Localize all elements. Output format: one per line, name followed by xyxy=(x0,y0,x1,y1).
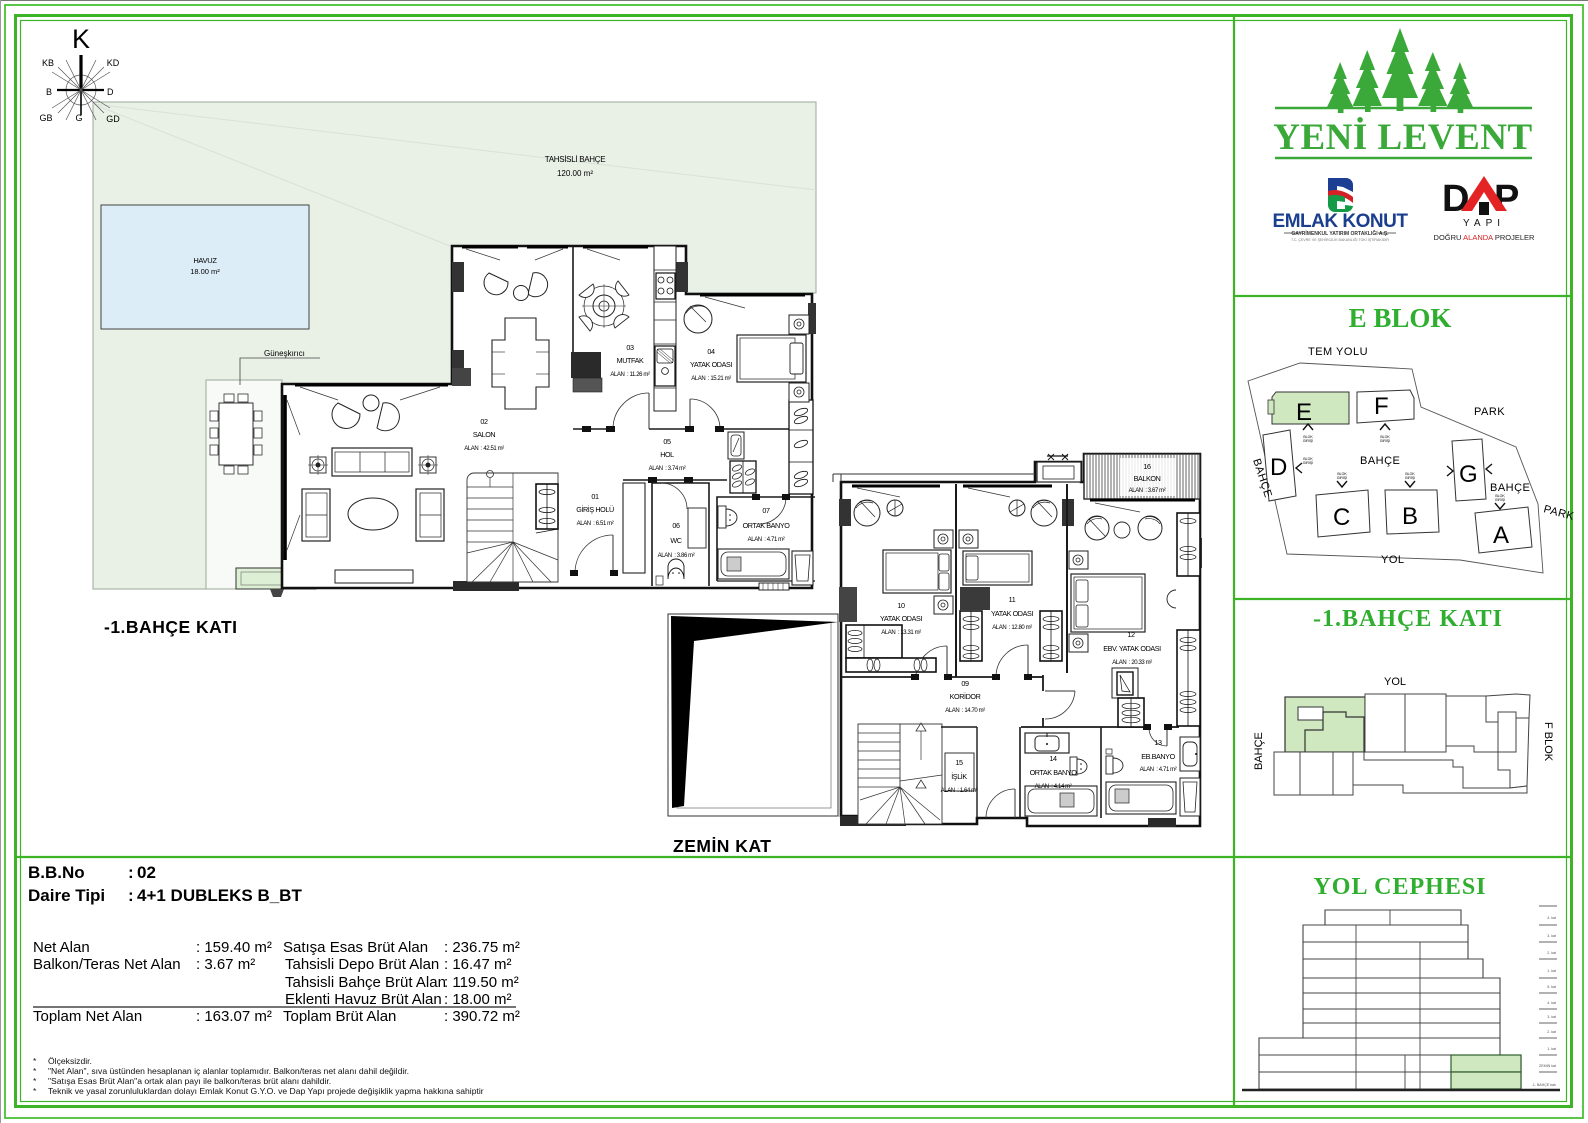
svg-text:C: C xyxy=(1333,504,1350,531)
svg-text:GİRİŞİ: GİRİŞİ xyxy=(1405,475,1416,480)
svg-text:D: D xyxy=(107,87,114,97)
svg-text:B: B xyxy=(1402,503,1418,530)
svg-text:Ölçeksizdir.: Ölçeksizdir. xyxy=(48,1056,92,1066)
svg-text:ALAN : 4.71 m²: ALAN : 4.71 m² xyxy=(748,537,785,543)
svg-text:ALAN : 6.51 m²: ALAN : 6.51 m² xyxy=(577,521,614,527)
svg-text:GAYRİMENKUL YATIRIM ORTAKLIĞI: GAYRİMENKUL YATIRIM ORTAKLIĞI A.Ş. xyxy=(1291,229,1389,237)
svg-text:-1.BAHÇE KATI: -1.BAHÇE KATI xyxy=(104,617,238,637)
svg-text:MUTFAK: MUTFAK xyxy=(617,356,644,365)
svg-text:G: G xyxy=(75,113,82,123)
svg-text:Daire Tipi: Daire Tipi xyxy=(28,886,105,905)
svg-text:4. kat: 4. kat xyxy=(1547,1001,1556,1005)
svg-text:GD: GD xyxy=(106,114,120,124)
svg-text:04: 04 xyxy=(707,347,715,356)
svg-text:ZEMİN KAT: ZEMİN KAT xyxy=(673,836,771,856)
svg-text:GB: GB xyxy=(39,113,52,123)
svg-text:ALAN : 15.21 m²: ALAN : 15.21 m² xyxy=(691,376,731,382)
svg-text:1. kat: 1. kat xyxy=(1547,969,1556,973)
svg-text:: 236.75 m²: : 236.75 m² xyxy=(444,939,520,956)
svg-text:: 163.07 m²: : 163.07 m² xyxy=(196,1008,272,1025)
svg-text:2. kat: 2. kat xyxy=(1547,951,1556,955)
svg-text:Tahsisli Depo Brüt Alan: Tahsisli Depo Brüt Alan xyxy=(285,956,439,973)
svg-text:: 18.00 m²: : 18.00 m² xyxy=(444,991,512,1008)
svg-text:EMLAK KONUT: EMLAK KONUT xyxy=(1273,211,1409,232)
svg-text:F BLOK: F BLOK xyxy=(1542,722,1554,762)
svg-text:ZEMİN kat: ZEMİN kat xyxy=(1539,1063,1556,1068)
svg-text:F: F xyxy=(1374,393,1389,420)
svg-text:TAHSİSLİ BAHÇE: TAHSİSLİ BAHÇE xyxy=(545,155,606,164)
svg-text:KB: KB xyxy=(42,58,54,68)
svg-text:KD: KD xyxy=(107,58,120,68)
svg-text:A: A xyxy=(1493,522,1509,549)
svg-text:BAHÇE: BAHÇE xyxy=(1490,482,1530,494)
svg-text::: : xyxy=(128,886,134,905)
svg-text:ALAN : 4.71 m²: ALAN : 4.71 m² xyxy=(1140,767,1177,773)
svg-text:YATAK ODASI: YATAK ODASI xyxy=(690,360,732,369)
svg-text:: 3.67 m²: : 3.67 m² xyxy=(196,956,255,973)
svg-text:ALAN : 20.33 m²: ALAN : 20.33 m² xyxy=(1112,660,1152,666)
svg-text:: 119.50 m²: : 119.50 m² xyxy=(444,974,519,991)
svg-text:-1. BAHÇE katı: -1. BAHÇE katı xyxy=(1532,1083,1556,1087)
svg-text:ORTAK BANYO: ORTAK BANYO xyxy=(743,521,791,530)
svg-text:SALON: SALON xyxy=(473,430,496,439)
svg-text:BAHÇE: BAHÇE xyxy=(1360,455,1400,467)
svg-text:06: 06 xyxy=(672,521,680,530)
svg-text:: 159.40 m²: : 159.40 m² xyxy=(196,939,272,956)
svg-text:HAVUZ: HAVUZ xyxy=(193,256,217,265)
svg-text:07: 07 xyxy=(762,506,770,515)
svg-text:3. kat: 3. kat xyxy=(1547,934,1556,938)
svg-text:ALAN : 3.67 m²: ALAN : 3.67 m² xyxy=(1129,488,1166,494)
svg-text:ALAN : 11.26 m²: ALAN : 11.26 m² xyxy=(610,372,650,378)
svg-text:ALAN : 12.80 m²: ALAN : 12.80 m² xyxy=(992,625,1032,631)
svg-text:YENİ LEVENT: YENİ LEVENT xyxy=(1273,116,1532,158)
svg-text:05: 05 xyxy=(663,437,671,446)
svg-text:: 390.72 m²: : 390.72 m² xyxy=(444,1008,520,1025)
svg-text:B: B xyxy=(46,87,52,97)
svg-text:YAPI: YAPI xyxy=(1463,218,1505,229)
svg-text:15: 15 xyxy=(955,758,963,767)
svg-text:GİRİŞİ: GİRİŞİ xyxy=(1303,438,1314,443)
svg-text:Net Alan: Net Alan xyxy=(33,939,90,956)
svg-text:D: D xyxy=(1442,178,1468,220)
svg-text:11: 11 xyxy=(1009,595,1016,604)
svg-text:GİRİŞİ: GİRİŞİ xyxy=(1495,497,1506,502)
svg-text:02: 02 xyxy=(480,417,488,426)
svg-text:: 16.47 m²: : 16.47 m² xyxy=(444,956,512,973)
svg-text:İŞLİK: İŞLİK xyxy=(951,772,967,781)
svg-text:GİRİŞİ: GİRİŞİ xyxy=(1380,438,1391,443)
svg-text:E BLOK: E BLOK xyxy=(1349,303,1452,333)
svg-text:BALKON: BALKON xyxy=(1134,474,1161,483)
svg-text:09: 09 xyxy=(961,679,969,688)
svg-text:Tahsisli Bahçe Brüt Alan: Tahsisli Bahçe Brüt Alan xyxy=(285,974,446,991)
svg-text:EB.BANYO: EB.BANYO xyxy=(1141,752,1175,761)
svg-text:"Satışa Esas Brüt Alan"a or: "Satışa Esas Brüt Alan"a ortak alan payı… xyxy=(48,1076,331,1086)
svg-text:EBV. YATAK ODASI: EBV. YATAK ODASI xyxy=(1103,644,1161,653)
svg-text:03: 03 xyxy=(626,343,634,352)
svg-text:02: 02 xyxy=(137,863,156,882)
svg-text:WC: WC xyxy=(670,536,681,545)
svg-text:GİRİŞ HOLÜ: GİRİŞ HOLÜ xyxy=(576,505,614,514)
svg-text:PARK: PARK xyxy=(1474,406,1505,418)
svg-text:ALAN : 14.70 m²: ALAN : 14.70 m² xyxy=(945,708,985,714)
svg-text:4+1 DUBLEKS B_BT: 4+1 DUBLEKS B_BT xyxy=(137,886,302,905)
svg-text:01: 01 xyxy=(591,492,599,501)
svg-text:Teknik ve yasal zorunlulukla: Teknik ve yasal zorunluluklardan dolayı … xyxy=(48,1086,484,1096)
svg-text:KORİDOR: KORİDOR xyxy=(950,692,981,701)
svg-text:16: 16 xyxy=(1143,462,1151,471)
svg-text:D: D xyxy=(1270,454,1287,481)
svg-text:TEM YOLU: TEM YOLU xyxy=(1308,346,1368,358)
svg-text:ORTAK BANYO: ORTAK BANYO xyxy=(1030,768,1078,777)
svg-text:18.00 m²: 18.00 m² xyxy=(190,267,220,276)
svg-text:Satışa Esas Brüt Alan: Satışa Esas Brüt Alan xyxy=(283,939,428,956)
svg-text:ALAN : 42.51 m²: ALAN : 42.51 m² xyxy=(464,446,504,452)
svg-text:ALAN : 13.31 m²: ALAN : 13.31 m² xyxy=(881,630,921,636)
svg-text:Toplam Net Alan: Toplam Net Alan xyxy=(33,1008,142,1025)
svg-text:E: E xyxy=(1296,399,1312,426)
svg-text:Eklenti Havuz Brüt Alan: Eklenti Havuz Brüt Alan xyxy=(285,991,442,1008)
svg-text:-1.BAHÇE KATI: -1.BAHÇE KATI xyxy=(1313,606,1503,632)
svg-text:13: 13 xyxy=(1154,738,1162,747)
svg-text:HOL: HOL xyxy=(660,450,674,459)
svg-text:YOL: YOL xyxy=(1384,676,1406,688)
svg-text:T.C. ÇEVRE VE ŞEHİRCİLİK BAKAN: T.C. ÇEVRE VE ŞEHİRCİLİK BAKANLIĞI TOKİ … xyxy=(1291,237,1389,242)
svg-text:K: K xyxy=(72,24,90,54)
svg-text:Toplam Brüt Alan: Toplam Brüt Alan xyxy=(283,1008,396,1025)
svg-text:ALAN : 1.64 m²: ALAN : 1.64 m² xyxy=(941,788,978,794)
svg-text:B.B.No: B.B.No xyxy=(28,863,85,882)
svg-text:ALAN : 4.14 m²: ALAN : 4.14 m² xyxy=(1035,784,1072,790)
svg-text:Balkon/Teras Net Alan: Balkon/Teras Net Alan xyxy=(33,956,181,973)
svg-text:4. kat: 4. kat xyxy=(1547,916,1556,920)
svg-text:12: 12 xyxy=(1127,630,1135,639)
svg-text:DOĞRU ALANDA PROJELER: DOĞRU ALANDA PROJELER xyxy=(1434,233,1535,242)
svg-text:Güneşkırıcı: Güneşkırıcı xyxy=(264,349,305,358)
svg-text:YOL CEPHESI: YOL CEPHESI xyxy=(1313,874,1486,900)
svg-text:"Net Alan", sıva üstünden h: "Net Alan", sıva üstünden hesaplanan iç … xyxy=(48,1066,409,1076)
svg-text:YATAK ODASI: YATAK ODASI xyxy=(991,609,1033,618)
svg-text:BAHÇE: BAHÇE xyxy=(1253,732,1265,770)
svg-text:5. kat: 5. kat xyxy=(1547,985,1556,989)
svg-text:ALAN : 3.74 m²: ALAN : 3.74 m² xyxy=(649,466,686,472)
svg-text::: : xyxy=(128,863,134,882)
svg-text:120.00 m²: 120.00 m² xyxy=(557,169,593,178)
svg-text:ALAN : 3.86 m²: ALAN : 3.86 m² xyxy=(658,553,695,559)
svg-text:1. kat: 1. kat xyxy=(1547,1047,1556,1051)
svg-text:2. kat: 2. kat xyxy=(1547,1030,1556,1034)
svg-text:10: 10 xyxy=(897,601,905,610)
svg-text:YOL: YOL xyxy=(1381,554,1405,566)
svg-text:3. kat: 3. kat xyxy=(1547,1015,1556,1019)
svg-text:GİRİŞİ: GİRİŞİ xyxy=(1337,475,1348,480)
svg-text:YATAK ODASI: YATAK ODASI xyxy=(880,614,922,623)
svg-text:G: G xyxy=(1459,461,1478,488)
svg-text:GİRİŞİ: GİRİŞİ xyxy=(1303,460,1314,465)
svg-text:14: 14 xyxy=(1049,754,1057,763)
